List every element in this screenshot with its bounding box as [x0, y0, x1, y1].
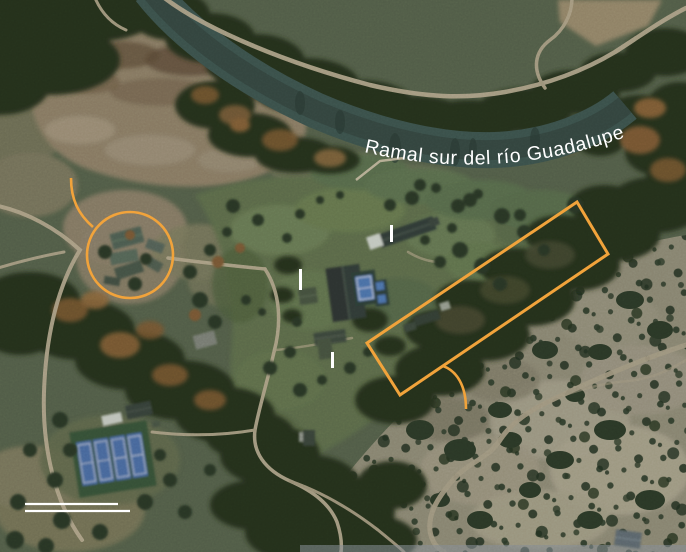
color-grade [0, 0, 686, 552]
building-tick-1 [390, 225, 393, 242]
satellite-map: Ramal sur del río Guadalupe [0, 0, 686, 552]
satellite-map-canvas: Ramal sur del río Guadalupe [0, 0, 686, 552]
building-tick-2 [299, 269, 302, 290]
building-tick-3 [331, 352, 334, 368]
